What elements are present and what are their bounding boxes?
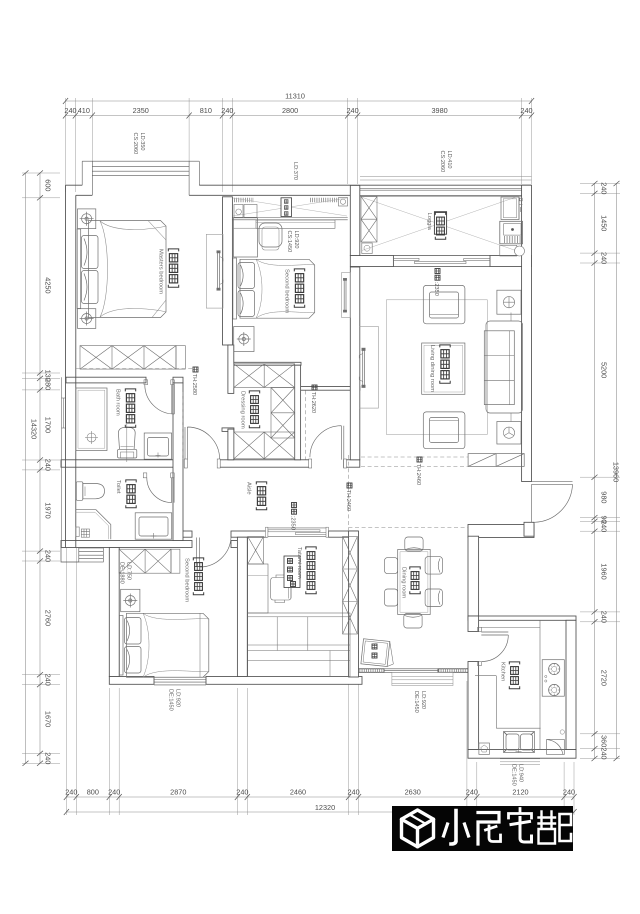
svg-text:240: 240 <box>563 788 575 797</box>
svg-text:240: 240 <box>600 747 609 759</box>
svg-text:240: 240 <box>44 752 53 764</box>
svg-text:Masters bedroom: Masters bedroom <box>158 249 164 294</box>
svg-text:810: 810 <box>200 106 212 115</box>
svg-text:LD:920: LD:920 <box>420 691 426 709</box>
svg-text:LD:750: LD:750 <box>126 562 132 580</box>
svg-text:CS:1450: CS:1450 <box>286 231 292 253</box>
svg-text:1960: 1960 <box>600 563 609 579</box>
svg-text:DE:1880: DE:1880 <box>119 562 125 584</box>
svg-text:240: 240 <box>44 674 53 686</box>
svg-text:TH:2460: TH:2460 <box>415 464 421 485</box>
svg-text:2720: 2720 <box>600 670 609 686</box>
svg-text:280: 280 <box>44 378 53 390</box>
svg-text:800: 800 <box>87 788 99 797</box>
svg-text:CS:2060: CS:2060 <box>132 133 138 155</box>
svg-text::2350: :2350 <box>433 282 439 296</box>
svg-text:240: 240 <box>600 611 609 623</box>
svg-text:240: 240 <box>600 252 609 264</box>
svg-text:2460: 2460 <box>290 788 306 797</box>
svg-text:360: 360 <box>600 735 609 747</box>
svg-text:Aisle: Aisle <box>246 482 252 495</box>
svg-text:TH:2580: TH:2580 <box>191 374 197 395</box>
svg-text:Dressing room: Dressing room <box>240 391 246 429</box>
svg-text:240: 240 <box>64 106 76 115</box>
svg-text:Toilet: Toilet <box>115 480 121 494</box>
svg-text:Tatami room: Tatami room <box>296 547 302 579</box>
svg-text:2870: 2870 <box>170 788 186 797</box>
svg-text:2760: 2760 <box>44 610 53 626</box>
svg-text:240: 240 <box>600 520 609 532</box>
svg-text:2800: 2800 <box>282 106 298 115</box>
svg-text:240: 240 <box>466 788 478 797</box>
svg-text:Living dining room: Living dining room <box>429 345 435 392</box>
svg-text:1450: 1450 <box>600 215 609 231</box>
svg-text:240: 240 <box>348 788 360 797</box>
svg-text:DE:1450: DE:1450 <box>168 689 174 711</box>
svg-text:13960: 13960 <box>612 462 621 482</box>
svg-text:LD:940: LD:940 <box>518 764 524 782</box>
svg-text:2630: 2630 <box>405 788 421 797</box>
svg-text:11310: 11310 <box>285 92 305 101</box>
svg-text:240: 240 <box>44 550 53 562</box>
svg-text:240: 240 <box>600 182 609 194</box>
svg-text:TH:2460: TH:2460 <box>345 490 351 511</box>
svg-text:410: 410 <box>78 106 90 115</box>
svg-text:DE:1450: DE:1450 <box>511 764 517 786</box>
svg-text:LD:350: LD:350 <box>139 133 145 151</box>
svg-text:1670: 1670 <box>44 711 53 727</box>
svg-text:Kitchen: Kitchen <box>500 662 506 681</box>
svg-text:1700: 1700 <box>44 417 53 433</box>
svg-text:240: 240 <box>65 788 77 797</box>
svg-text:TH:2620: TH:2620 <box>310 392 316 413</box>
svg-text:CS:2060: CS:2060 <box>439 151 445 173</box>
svg-text:Dining room: Dining room <box>401 567 407 598</box>
svg-text:3980: 3980 <box>431 106 447 115</box>
svg-text:Second bedroom: Second bedroom <box>184 558 190 602</box>
svg-text:Bath room: Bath room <box>115 389 121 416</box>
svg-text:LD:920: LD:920 <box>175 689 181 707</box>
svg-text::2350: :2350 <box>290 516 296 530</box>
svg-text:240: 240 <box>221 106 233 115</box>
svg-text:980: 980 <box>600 491 609 503</box>
svg-text:14320: 14320 <box>30 419 39 439</box>
svg-text:2120: 2120 <box>512 788 528 797</box>
svg-text:4250: 4250 <box>44 277 53 293</box>
svg-text:240: 240 <box>44 459 53 471</box>
svg-text:5200: 5200 <box>600 362 609 378</box>
svg-text:600: 600 <box>44 179 53 191</box>
svg-text:240: 240 <box>347 106 359 115</box>
svg-text:LD:370: LD:370 <box>292 162 298 180</box>
svg-text:Second bedroom: Second bedroom <box>284 269 290 313</box>
svg-text:240: 240 <box>520 106 532 115</box>
svg-text:240: 240 <box>236 788 248 797</box>
svg-text:12320: 12320 <box>315 803 335 812</box>
svg-text:DE:1450: DE:1450 <box>413 691 419 713</box>
svg-text:Loggia: Loggia <box>426 213 432 231</box>
svg-text:240: 240 <box>108 788 120 797</box>
svg-text:LD:410: LD:410 <box>446 151 452 169</box>
svg-text:LD:920: LD:920 <box>293 231 299 249</box>
svg-text:2350: 2350 <box>133 106 149 115</box>
svg-text:1970: 1970 <box>44 502 53 518</box>
